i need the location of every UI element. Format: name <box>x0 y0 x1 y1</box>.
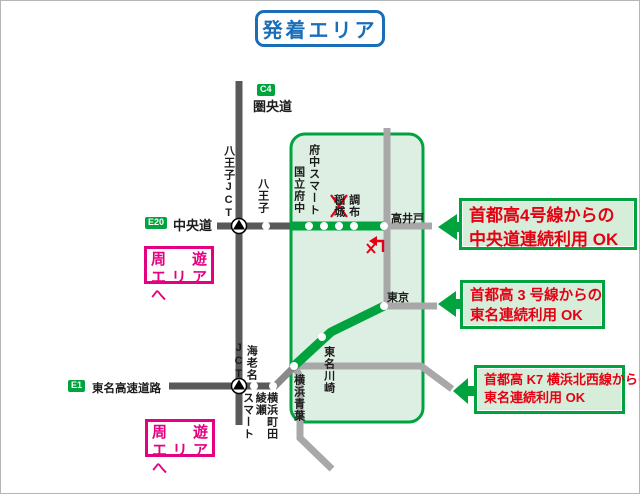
road-badge-c4: C4 <box>257 84 275 96</box>
tour-area-lower-line2: エリアへ <box>152 442 208 478</box>
label-ebina-jct-main: 海老名 <box>245 345 258 381</box>
label-yokohama-aoba: 横浜青葉 <box>292 374 305 422</box>
hachioji-jct-icon <box>232 219 247 234</box>
tour-area-link-upper: 周 遊 エリアへ <box>144 246 214 284</box>
label-ebina-jct-suffix: JCT <box>232 342 245 381</box>
takaido-ic-marker <box>380 222 388 230</box>
road-name-kenodo: 圏央道 <box>253 96 292 115</box>
arrow-left-icon-k7 <box>453 378 474 404</box>
callout-shuto3-line2: 東名連続利用 OK <box>470 306 595 326</box>
label-hachioji-jct: 八王子JCT <box>222 145 235 220</box>
label-tomei-kawasaki: 東名川崎 <box>322 346 335 394</box>
chofu-ic-marker <box>350 222 358 230</box>
label-ayase-smart: スマート 綾瀬 <box>241 392 266 440</box>
yokohama-machida-ic-marker <box>269 382 277 390</box>
ayase-smart-ic-marker <box>250 382 258 390</box>
label-ayase-smart-suffix: スマート <box>241 392 254 440</box>
label-tokyo: 東京 <box>387 289 409 305</box>
callout-k7-line2: 東名連続利用 OK <box>484 389 615 407</box>
callout-shuto3-tomei: 首都高 3 号線からの 東名連続利用 OK <box>460 280 605 329</box>
kunitachi-fuchu-ic-marker <box>305 222 313 230</box>
tour-area-lower-line1: 周 遊 <box>152 424 208 442</box>
inagi-ic-marker <box>335 222 343 230</box>
callout-shuto4-line2: 中央道連続利用 OK <box>469 228 627 252</box>
label-inagi: 稲城 <box>332 194 345 218</box>
tour-area-upper-line2: エリアへ <box>151 269 207 305</box>
callout-k7-line1: 首都高 K7 横浜北西線からの <box>484 371 615 389</box>
label-fuchu-smart: 府中スマート <box>307 144 320 216</box>
road-badge-e1: E1 <box>68 380 85 392</box>
arrow-left-icon-shuto3 <box>438 291 462 317</box>
road-name-chuodo: 中央道 <box>173 215 212 234</box>
callout-shuto4-line1: 首都高4号線からの <box>469 204 627 228</box>
hachioji-ic-marker <box>262 222 270 230</box>
label-kunitachi-fuchu: 国立府中 <box>292 166 305 214</box>
callout-k7-tomei: 首都高 K7 横浜北西線からの 東名連続利用 OK <box>474 365 625 414</box>
label-hachioji: 八王子 <box>256 178 269 214</box>
page-title: 発着エリア <box>255 10 385 47</box>
yokohama-aoba-ic-marker <box>290 362 298 370</box>
label-takaido: 高井戸 <box>391 210 424 226</box>
callout-shuto3-line1: 首都高 3 号線からの <box>470 286 595 306</box>
road-badge-e20: E20 <box>145 217 167 229</box>
label-ebina-jct: JCT 海老名 <box>232 339 257 381</box>
fuchu-smart-ic-marker <box>320 222 328 230</box>
tour-area-upper-line1: 周 遊 <box>151 251 207 269</box>
label-yokohama-machida: 横浜町田 <box>265 392 278 440</box>
departure-area-diagram: 発着エリア C4 圏央道 E20 中央道 E1 東名高速道路 八王子JCT 八王… <box>0 0 640 494</box>
callout-shuto4-chuo: 首都高4号線からの 中央道連続利用 OK <box>459 198 637 250</box>
label-chofu: 調布 <box>347 194 360 218</box>
tour-area-link-lower: 周 遊 エリアへ <box>145 419 215 457</box>
road-name-tomei: 東名高速道路 <box>92 380 161 396</box>
tomei-kawasaki-ic-marker <box>318 333 326 341</box>
